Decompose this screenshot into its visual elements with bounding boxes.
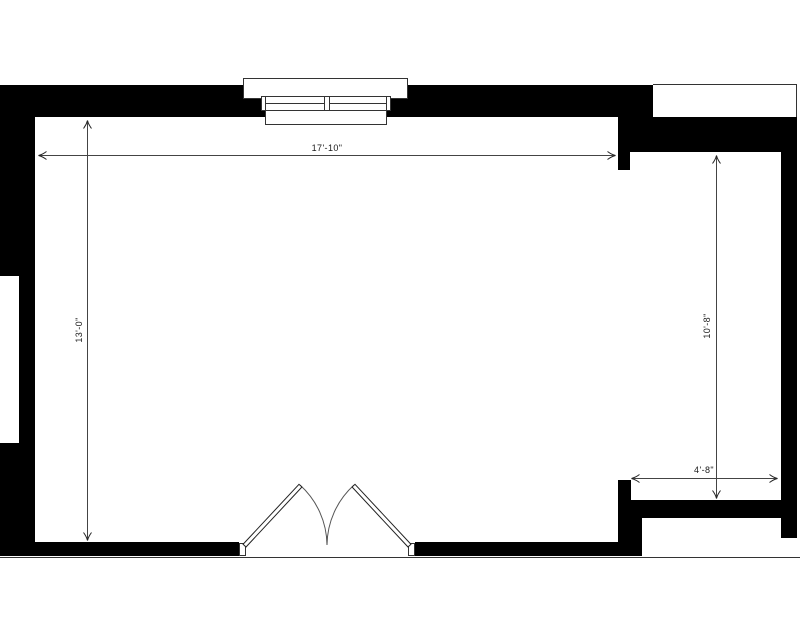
bottom-wall-left [0,542,239,556]
top-right-area-outline [653,85,797,118]
floor-plan-drawing [0,0,800,640]
upper-wall-stub [618,152,630,170]
lower-wall-pier [618,518,642,556]
left-wall-recess [0,276,19,443]
door-swing-arc-right [327,485,354,545]
lower-wall-stub [618,480,631,518]
dimension-label-room-height: 13'-0" [74,317,84,342]
dimension-label-alcove-height: 10'-8" [702,313,712,338]
door-leaf-left [243,484,302,547]
alcove-top-wall [618,117,797,152]
dimension-label-alcove-width: 4'-8" [694,465,714,475]
right-wall [781,152,797,538]
door-leaf-right [352,484,411,547]
window-exterior-sill [244,79,408,99]
top-window [244,79,408,125]
double-doors [240,484,415,555]
floor-plan-canvas: 17'-10" 13'-0" 10'-8" 4'-8" [0,0,800,640]
dimension-lines [39,121,777,540]
bottom-wall-right [415,542,618,556]
door-swing-arc-left [300,485,327,545]
window-interior-stool [266,111,387,125]
dimension-label-room-width: 17'-10" [312,143,343,153]
alcove-bottom-wall [618,500,797,518]
